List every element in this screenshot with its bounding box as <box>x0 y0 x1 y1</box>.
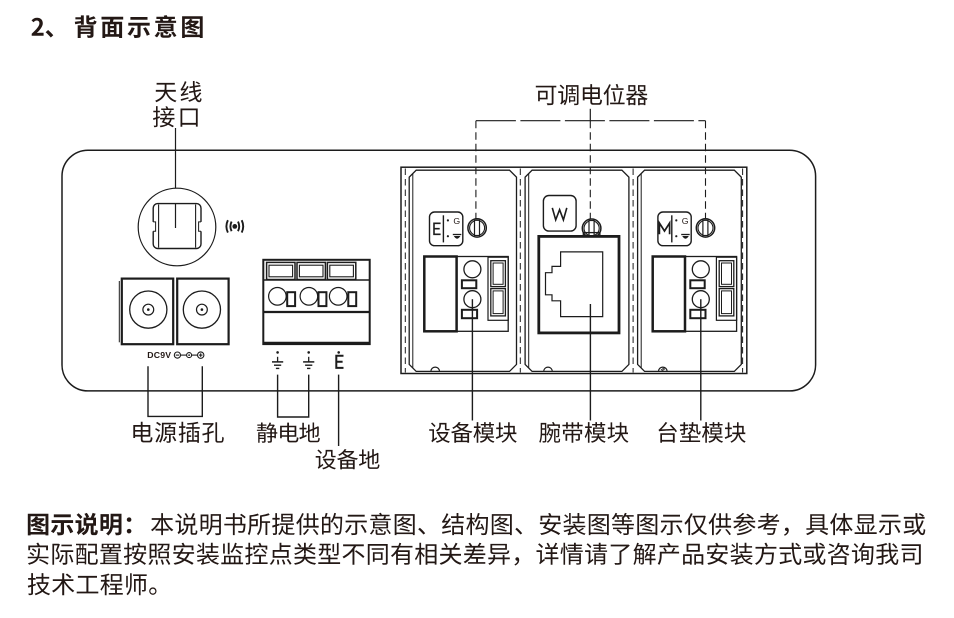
svg-text:DC9V: DC9V <box>147 350 171 360</box>
svg-text:G: G <box>682 216 689 226</box>
svg-text:G: G <box>453 216 460 226</box>
